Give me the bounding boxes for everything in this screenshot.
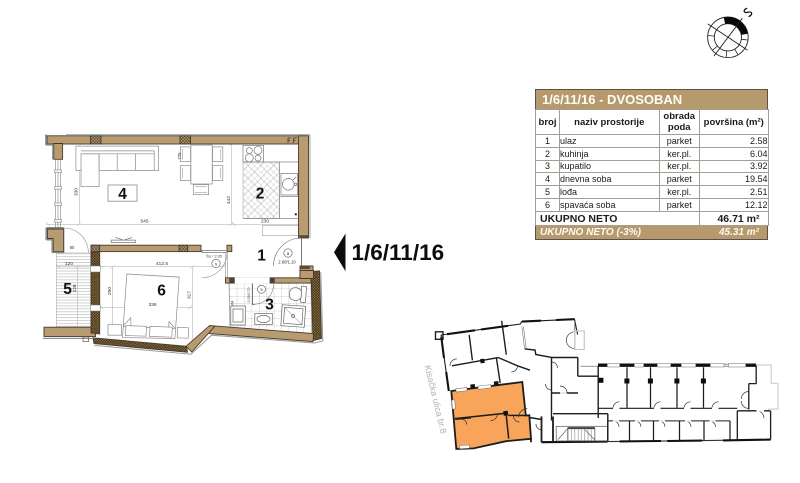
svg-text:6: 6 xyxy=(157,283,166,300)
svg-text:2: 2 xyxy=(256,186,265,203)
svg-text:Kisačka ulica br.8: Kisačka ulica br.8 xyxy=(423,364,449,434)
svg-text:53: 53 xyxy=(93,261,99,267)
svg-text:4: 4 xyxy=(118,186,127,203)
svg-text:412.5: 412.5 xyxy=(156,261,168,267)
svg-text:545: 545 xyxy=(140,219,148,225)
svg-text:5: 5 xyxy=(63,281,72,298)
svg-text:442: 442 xyxy=(226,196,232,204)
svg-text:VM: VM xyxy=(231,301,235,307)
svg-text:80: 80 xyxy=(70,245,75,250)
svg-text:2.80/1.10: 2.80/1.10 xyxy=(278,260,296,265)
svg-text:1: 1 xyxy=(257,248,266,265)
svg-text:ŠU / 2.05: ŠU / 2.05 xyxy=(206,254,222,259)
svg-text:290: 290 xyxy=(107,287,113,295)
svg-text:3: 3 xyxy=(265,297,274,314)
svg-text:1/6/11/16: 1/6/11/16 xyxy=(352,240,445,265)
svg-text:330: 330 xyxy=(74,188,80,196)
svg-text:338: 338 xyxy=(148,302,156,308)
svg-text:228: 228 xyxy=(72,284,78,292)
svg-text:120: 120 xyxy=(65,261,73,267)
svg-text:317: 317 xyxy=(187,291,193,299)
svg-text:230: 230 xyxy=(261,219,269,225)
svg-text:775: 775 xyxy=(177,152,182,160)
svg-text:2.05/0.70: 2.05/0.70 xyxy=(247,288,251,303)
